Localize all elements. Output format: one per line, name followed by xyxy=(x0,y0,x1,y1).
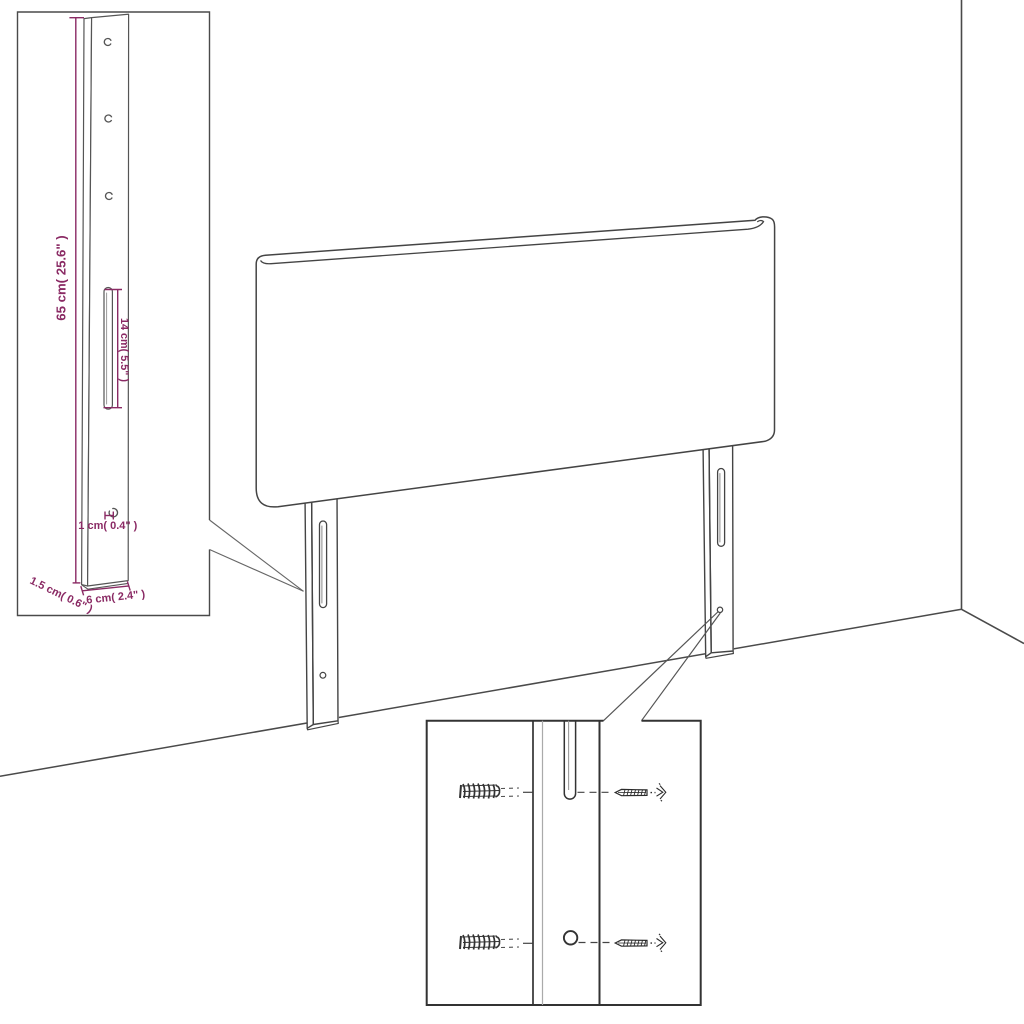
svg-text:14 cm( 5.5" ): 14 cm( 5.5" ) xyxy=(118,318,130,382)
svg-text:65 cm( 25.6" ): 65 cm( 25.6" ) xyxy=(54,235,69,320)
svg-text:1 cm( 0.4" ): 1 cm( 0.4" ) xyxy=(78,520,137,532)
